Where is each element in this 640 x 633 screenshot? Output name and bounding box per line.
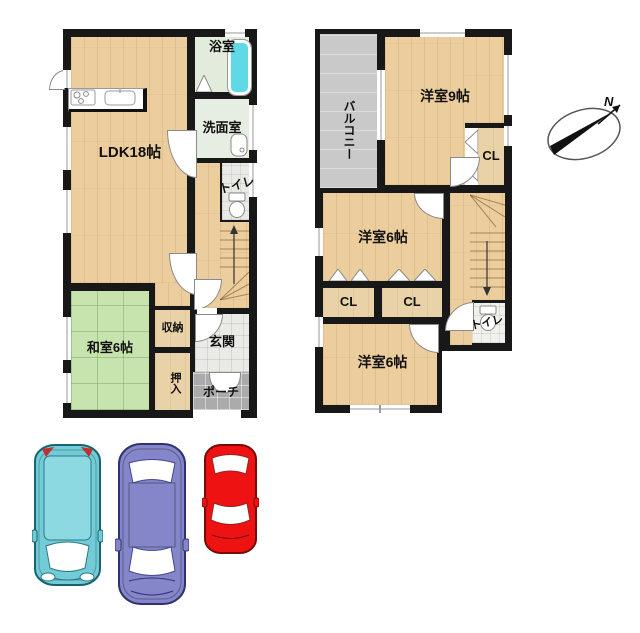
balcony-sliding-window [377,70,385,140]
window [504,55,512,115]
kitchen-counter [68,88,147,112]
compass-north-label: N [604,94,614,109]
floor-plan-page: LDK18帖 浴室 洗面室 トイレ 和室6帖 収納 押入 玄関 ポーチ [0,0,640,633]
floor2-plan: バルコニー 洋室9帖 CL 洋室6帖 CL CL 洋室6帖 トイレ [315,29,512,413]
stairs-down-icon [470,193,505,300]
room-label-storage: 収納 [155,322,190,334]
porch-open-edge [193,410,241,418]
compass-icon: N [542,92,630,168]
window [315,228,323,256]
staircase-1f [220,222,249,300]
room-label-genkan: 玄関 [195,335,249,349]
window [63,373,71,403]
room-label-closet-left: CL [323,295,374,309]
room-label-bath: 浴室 [195,40,249,54]
hallway-1f-lower [220,300,249,308]
room-label-washroom: 洗面室 [193,121,251,135]
room-label-ldk: LDK18帖 [85,145,175,162]
window [315,317,323,347]
room-label-washitsu: 和室6帖 [71,341,149,355]
window [63,317,71,360]
room-label-bedroom6-bottom: 洋室6帖 [330,355,435,370]
room-label-porch: ポーチ [193,386,249,399]
window [504,126,512,146]
window [63,190,71,233]
folding-door-icon [386,269,438,281]
stove-and-sink-icon [69,89,139,107]
room-label-bedroom9: 洋室9帖 [395,89,495,104]
window [420,29,465,37]
window-divider [379,405,381,413]
room-label-balcony: バルコニー [339,75,355,185]
room-label-bedroom6-mid: 洋室6帖 [333,230,433,245]
room-label-oshiire: 押入 [164,359,181,407]
window [63,127,71,170]
folding-door-icon [327,269,371,281]
window [225,29,245,37]
door-opening [63,70,71,88]
building-notch [442,351,512,413]
red-car [202,443,259,557]
sink-icon [230,133,248,157]
toilet-icon [226,192,248,219]
room-label-closet-top: CL [478,149,504,163]
stairs-up-icon [220,222,249,300]
purple-car [115,441,189,607]
floor1-plan: LDK18帖 浴室 洗面室 トイレ 和室6帖 収納 押入 玄関 ポーチ [63,29,257,418]
room-label-closet-right: CL [382,295,442,309]
teal-car [32,442,103,588]
bath-folding-door-icon [196,75,213,92]
